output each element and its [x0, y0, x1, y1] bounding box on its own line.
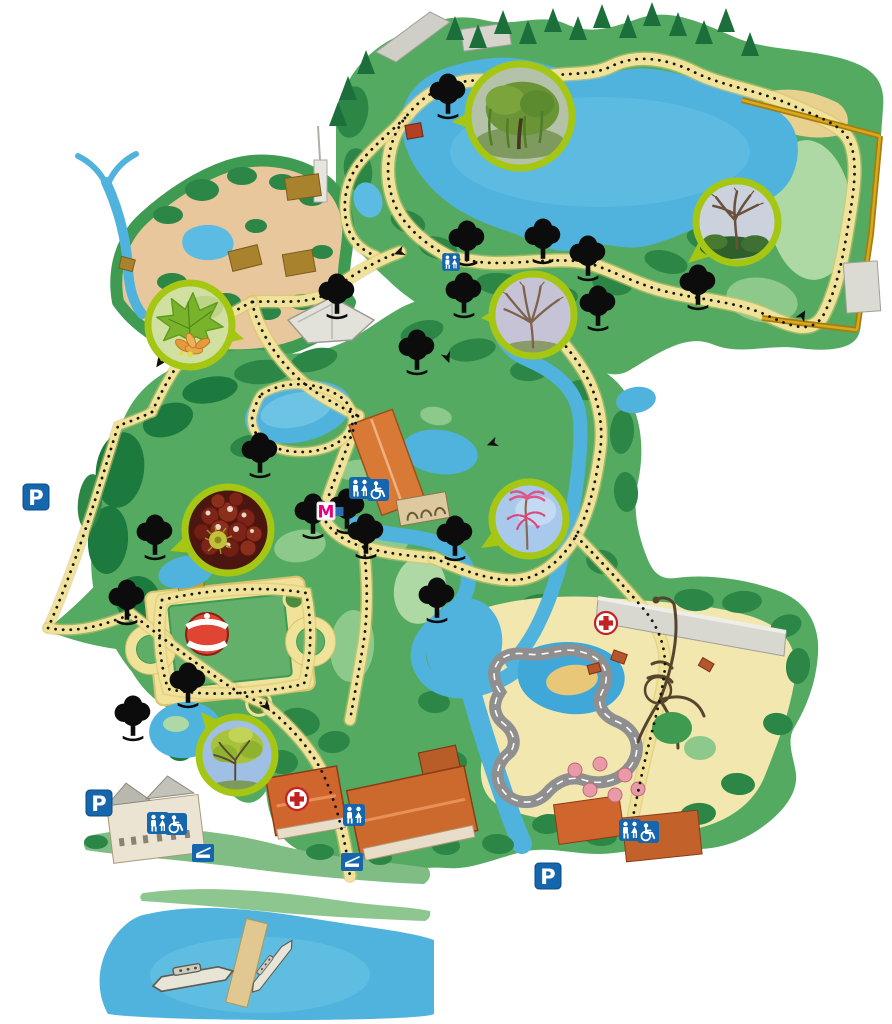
photo-inset-spring_tree — [199, 712, 275, 793]
boat-dock-icon — [341, 853, 363, 871]
toilets-icon — [442, 253, 460, 271]
toilets-icon — [343, 804, 365, 826]
conifer-icon — [643, 2, 661, 26]
parking-sign — [86, 790, 112, 816]
parking-sign — [535, 863, 561, 889]
park-map-image: P M — [0, 0, 892, 1024]
map-canvas: P M — [0, 0, 892, 1024]
first-aid-icon — [595, 612, 617, 634]
foliage-blob — [84, 835, 108, 849]
savanna-pond — [182, 225, 233, 260]
foliage-blob — [245, 219, 267, 233]
foliage-blob — [311, 245, 333, 259]
conifer-icon — [717, 8, 735, 32]
foliage-blob — [153, 206, 183, 224]
wheelchair-access-icon — [367, 479, 389, 501]
lakeside-hut — [405, 123, 423, 140]
parking-sign — [23, 484, 49, 510]
conifer-icon — [494, 10, 512, 34]
wheelchair-access-icon — [165, 813, 187, 835]
carousel — [186, 613, 228, 655]
garden-pond-island — [163, 716, 189, 732]
foliage-blob — [306, 844, 334, 860]
foliage-blob — [227, 167, 257, 185]
first-aid-icon — [286, 788, 308, 810]
east-grey-building — [843, 261, 880, 313]
foliage-blob — [684, 736, 716, 760]
savanna-hut-3 — [282, 250, 315, 277]
savanna-hut-1 — [285, 174, 322, 201]
foliage-blob — [185, 179, 219, 201]
wheelchair-access-icon — [637, 821, 659, 843]
boat-dock-icon — [192, 844, 214, 862]
stream-branches — [78, 154, 136, 184]
tree-icon — [115, 696, 151, 742]
playground-building-1 — [554, 796, 625, 845]
tower-mast — [318, 126, 320, 160]
conifer-icon — [593, 4, 611, 28]
picnic-tree — [652, 712, 692, 744]
